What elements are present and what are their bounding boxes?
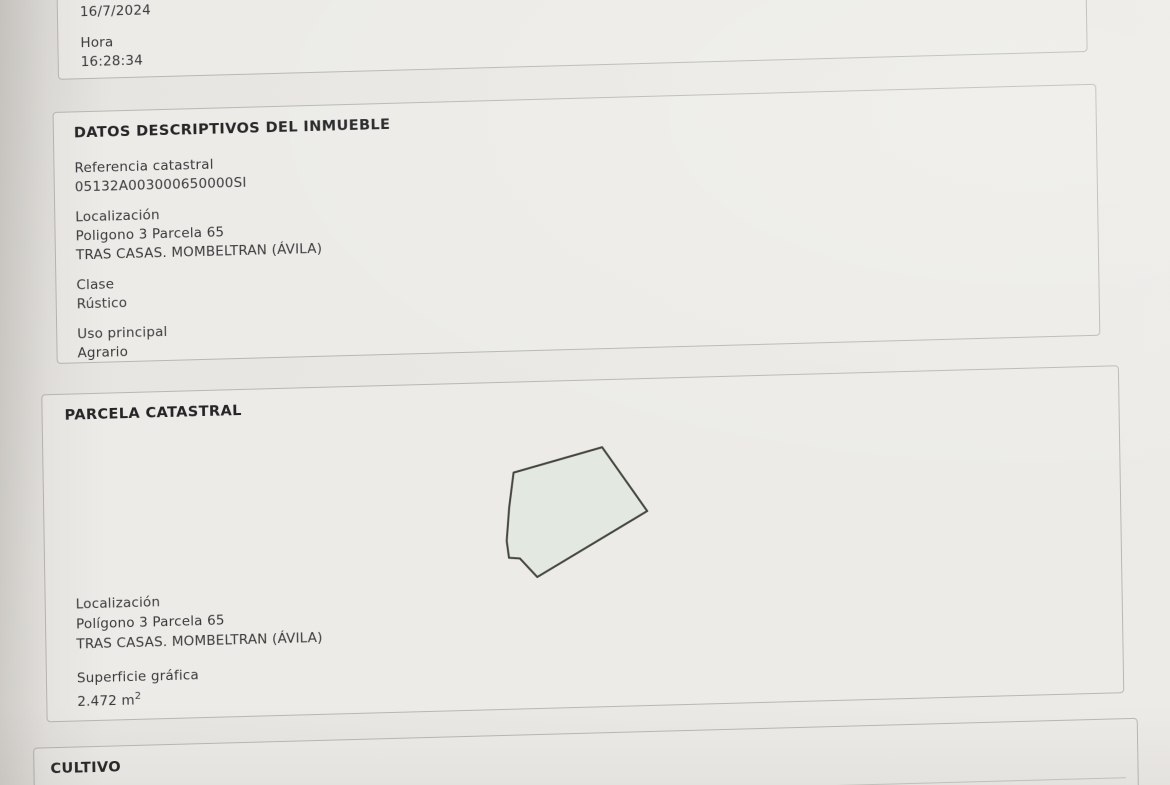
panel-cultivo: CULTIVO — [33, 718, 1140, 785]
field-superficie-grafica: Superficie gráfica 2.472 m2 — [77, 662, 324, 712]
paper: Fecha 16/7/2024 Hora 16:28:34 DATOS DESC… — [50, 0, 1125, 785]
cultivo-title: CULTIVO — [50, 731, 1137, 779]
panel-datos-descriptivos: DATOS DESCRIPTIVOS DEL INMUEBLE Referenc… — [53, 84, 1101, 364]
superficie-value-text: 2.472 m — [77, 692, 135, 710]
cultivo-table-top-border — [105, 777, 1126, 785]
parcel-outline — [505, 446, 648, 578]
panel-parcela-catastral: PARCELA CATASTRAL Localización Polígono … — [41, 365, 1124, 722]
document-photo: Fecha 16/7/2024 Hora 16:28:34 DATOS DESC… — [0, 0, 1170, 785]
superficie-value-sup: 2 — [135, 691, 142, 702]
datos-fields: Referencia catastral 05132A003000650000S… — [74, 132, 1099, 364]
field-parcela-localizacion: Localización Polígono 3 Parcela 65 TRAS … — [76, 588, 323, 655]
panel-fecha-hora: Fecha 16/7/2024 Hora 16:28:34 — [56, 0, 1088, 80]
parcela-fields: Localización Polígono 3 Parcela 65 TRAS … — [76, 588, 324, 726]
